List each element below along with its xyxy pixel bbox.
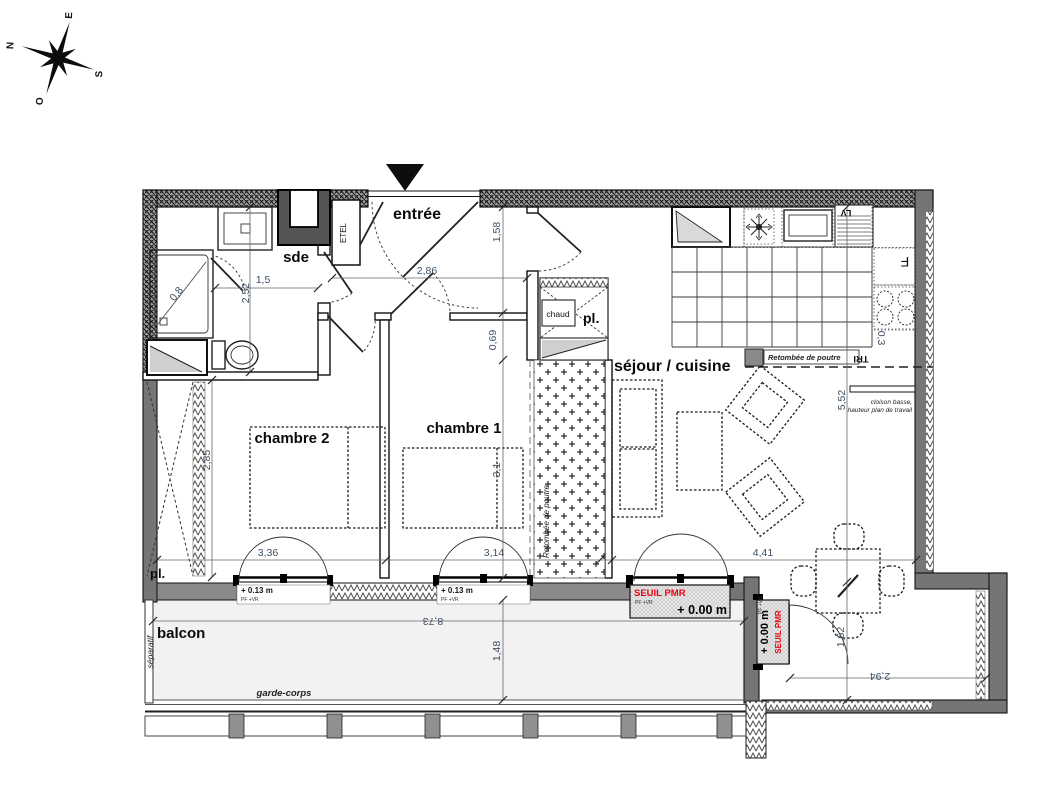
dim-nook-width: 2,94 (870, 670, 891, 682)
seuil-level-label: + 0.00 m (677, 603, 727, 617)
pf-chambre1: PF +VR (441, 597, 459, 603)
hall-wall-c (450, 313, 527, 320)
dim-sde-height: 2,52 (240, 283, 252, 304)
pf-chambre2: PF +VR (241, 597, 259, 603)
annotation-garde-corps: garde-corps (256, 688, 312, 699)
top-wall-right (480, 190, 933, 207)
nook-insulation-right (976, 591, 985, 699)
seuil-pmr-label: SEUIL PMR (634, 588, 686, 599)
label-placard-chambre2: pl. (150, 566, 165, 581)
seuil-pf-label: PF +VR (635, 600, 653, 606)
compass-s: S (94, 70, 105, 78)
dim-chambre2-height: 2,85 (201, 450, 213, 471)
compass-n: N (5, 42, 16, 50)
annotation-cloison-2: hauteur plan de travail (848, 407, 913, 414)
railing-post (327, 714, 342, 738)
annotation-beam-vertical: Retombée de poutre (542, 485, 551, 558)
label-fridge: F (901, 254, 910, 270)
duct-shaft-notch (290, 190, 318, 227)
spandrel-left (157, 583, 237, 600)
entree-east-wall-a (527, 207, 538, 213)
dim-entree-depth: 1,58 (491, 222, 503, 243)
balcony-edge-lines (145, 700, 762, 705)
dim-sejour-height: 5,52 (836, 390, 848, 411)
label-entree: entrée (393, 206, 441, 223)
spandrel-center (330, 583, 437, 600)
compass-rose: E S N O (0, 3, 113, 114)
floor-plan-drawing: 1,5 2,52 2,86 1,58 0,69 3,1 2,85 3,36 3,… (0, 0, 1053, 800)
beam-post (745, 349, 763, 366)
seuil2-level-label: + 0.00 m (759, 610, 771, 654)
compass-o: O (35, 97, 46, 106)
seuil2-pf-label: PF +VR (758, 596, 764, 614)
sejour-west-edge (605, 360, 612, 578)
wardrobe-sliding-door (193, 382, 205, 576)
dim-entree-width: 2,86 (417, 265, 438, 277)
label-etel: ETEL (339, 222, 348, 243)
label-chambre2: chambre 2 (254, 430, 329, 447)
annotation-beam-box: Retombée de poutre (768, 353, 841, 362)
hall-wall-b (375, 313, 391, 320)
annotation-cloison-1: cloison basse, (871, 399, 912, 406)
label-sejour: séjour / cuisine (614, 358, 731, 375)
label-balcon: balcon (157, 625, 205, 642)
dim-kitchen-return: 0,3 (875, 331, 887, 346)
dim-chambre2-width: 3,36 (258, 547, 279, 559)
entrance-marker-icon (386, 164, 424, 191)
level-chambre1: + 0.13 m (441, 586, 473, 595)
lower-railing-band (145, 714, 746, 738)
dim-balcon-width: 8,73 (423, 615, 444, 627)
railing-post (229, 714, 244, 738)
dim-sejour-width: 4,41 (753, 547, 774, 559)
entree-east-wall-b (527, 271, 538, 360)
dim-nook-depth: 1,62 (835, 627, 847, 648)
dim-chambre1-height: 3,1 (491, 463, 503, 478)
balcony-end-pillar (746, 701, 766, 758)
seuil2-pmr-label: SEUIL PMR (774, 610, 783, 654)
right-wall-insulation (926, 212, 933, 570)
closet-top-band (540, 278, 608, 287)
dim-chambre1-width: 3,14 (484, 547, 505, 559)
floor-plan-page: 1,5 2,52 2,86 1,58 0,69 3,1 2,85 3,36 3,… (0, 0, 1053, 800)
dim-balcon-depth: 1,48 (491, 641, 503, 662)
dining-nook-floor (759, 589, 976, 700)
bedroom-partition (380, 320, 389, 578)
compass-star (16, 16, 100, 100)
nook-right-wall (989, 573, 1007, 705)
label-chaud: chaud (546, 309, 569, 319)
railing-post (717, 714, 732, 738)
label-chambre1: chambre 1 (426, 420, 501, 437)
entrance-lintel (368, 191, 480, 197)
label-placard-hall: pl. (583, 310, 599, 326)
level-chambre2: + 0.13 m (241, 586, 273, 595)
dim-beam-offset: 0,69 (487, 330, 499, 351)
railing-post (523, 714, 538, 738)
label-dishwasher: LV (841, 208, 852, 218)
railing-post (621, 714, 636, 738)
railing-post (425, 714, 440, 738)
label-tri: TRI (853, 353, 868, 364)
low-partition (850, 386, 915, 392)
annotation-separatif: séparatif (145, 634, 155, 668)
compass-e: E (64, 11, 75, 19)
spandrel-center2 (530, 583, 630, 600)
dim-sde-width: 1,5 (256, 274, 271, 286)
label-sde: sde (283, 249, 309, 266)
nook-insulation-bottom (764, 701, 932, 710)
hall-wall-a (318, 313, 328, 320)
